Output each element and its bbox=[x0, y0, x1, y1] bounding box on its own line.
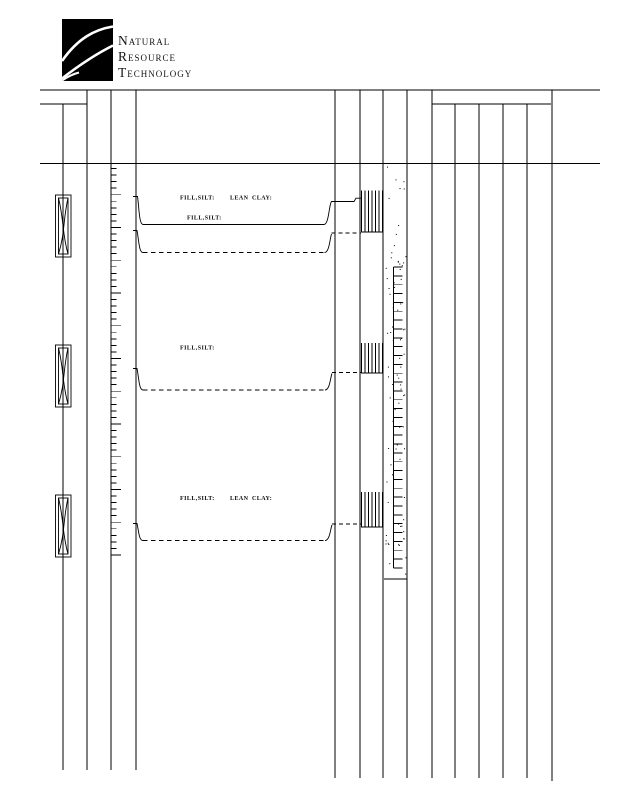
stipple-dot bbox=[388, 544, 389, 545]
stipple-dot bbox=[403, 262, 404, 263]
stipple-dot bbox=[398, 225, 399, 226]
stipple-dot bbox=[388, 367, 389, 368]
stipple-dot bbox=[399, 264, 400, 265]
layer2-right-end bbox=[325, 374, 332, 391]
boring-log-drawing: Natural Resource Technology bbox=[0, 0, 619, 800]
stipple-dot bbox=[394, 287, 395, 288]
logo-text-line1: Natural bbox=[118, 33, 170, 48]
soil-label-lean: LEAN bbox=[230, 496, 249, 502]
stipple-dot bbox=[388, 502, 389, 503]
stipple-dot bbox=[391, 252, 392, 253]
layer3-left-end bbox=[133, 524, 143, 541]
stipple-dot bbox=[387, 482, 388, 483]
stipple-dot bbox=[403, 181, 404, 182]
stipple-dot bbox=[403, 519, 404, 520]
stipple-dot bbox=[405, 574, 406, 575]
screen-hatch-intervals bbox=[361, 191, 383, 528]
stipple-dot bbox=[389, 288, 390, 289]
layer2-left-end bbox=[133, 369, 143, 391]
stipple-dot bbox=[400, 303, 401, 304]
stipple-dot bbox=[386, 268, 387, 269]
stipple-dot bbox=[398, 403, 399, 404]
stipple-dot bbox=[391, 464, 392, 465]
stipple-dot bbox=[392, 474, 393, 475]
stipple-dot bbox=[400, 339, 401, 340]
stipple-dot bbox=[401, 526, 402, 527]
soil-label-lean: LEAN bbox=[230, 196, 249, 202]
stipple-dot bbox=[390, 332, 391, 333]
stipple-dot bbox=[400, 269, 401, 270]
stipple-dot bbox=[397, 375, 398, 376]
stipple-dot bbox=[392, 327, 393, 328]
stipple-dot bbox=[388, 543, 389, 544]
stipple-dot bbox=[394, 245, 395, 246]
stipple-dot bbox=[404, 329, 405, 330]
stipple-dot bbox=[388, 448, 389, 449]
stipple-dot bbox=[400, 384, 401, 385]
stipple-dot bbox=[398, 378, 399, 379]
stipple-dot bbox=[397, 310, 398, 311]
soil-label-fill-silt: FILL,SILT: bbox=[180, 496, 215, 502]
layer1-bottom-left-end bbox=[133, 231, 143, 253]
stipple-dot bbox=[403, 426, 404, 427]
stipple-dot bbox=[402, 265, 403, 266]
stipple-dot bbox=[390, 397, 391, 398]
stipple-dot bbox=[404, 497, 405, 498]
stipple-dot bbox=[404, 448, 405, 449]
logo-text-line2: Resource bbox=[118, 49, 176, 64]
layer3-right-end bbox=[325, 525, 332, 541]
drawing-sheet: Natural Resource Technology bbox=[0, 0, 619, 800]
stipple-dot bbox=[386, 540, 387, 541]
stipple-dot bbox=[388, 376, 389, 377]
stipple-dot bbox=[405, 557, 406, 558]
stipple-dot bbox=[400, 367, 401, 368]
company-logo: Natural Resource Technology bbox=[62, 19, 192, 81]
stipple-dot bbox=[401, 279, 402, 280]
stipple-dot bbox=[389, 563, 390, 564]
stipple-dot bbox=[386, 535, 387, 536]
stipple-dot bbox=[396, 449, 397, 450]
stipple-dot bbox=[399, 358, 400, 359]
soil-label-clay: CLAY: bbox=[252, 196, 272, 202]
soil-label-fill-silt: FILL,SILT: bbox=[187, 216, 222, 222]
stipple-dot bbox=[400, 526, 401, 527]
stipple-dot bbox=[391, 257, 392, 258]
log-column-grid bbox=[40, 90, 600, 781]
stipple-dot bbox=[404, 189, 405, 190]
soil-description-labels: FILL,SILT: LEAN CLAY: FILL,SILT: FILL,SI… bbox=[180, 196, 272, 503]
stipple-dot bbox=[403, 538, 404, 539]
stipple-dot bbox=[403, 395, 404, 396]
depth-ruler bbox=[111, 169, 121, 555]
stipple-dot bbox=[400, 188, 401, 189]
stipple-dot bbox=[389, 198, 390, 199]
stipple-dot bbox=[398, 261, 399, 262]
stipple-dot bbox=[387, 333, 388, 334]
stipple-dot bbox=[403, 329, 404, 330]
stipple-dot bbox=[401, 389, 402, 390]
logo-text-line3: Technology bbox=[118, 65, 192, 80]
layer1-bottom-right-end bbox=[325, 234, 332, 253]
stipple-dot bbox=[396, 179, 397, 180]
stipple-dot bbox=[395, 409, 396, 410]
stipple-dot bbox=[404, 395, 405, 396]
stipple-dot bbox=[397, 445, 398, 446]
stipple-dot bbox=[403, 531, 404, 532]
soil-label-fill-silt: FILL,SILT: bbox=[180, 346, 215, 352]
stipple-dot bbox=[390, 294, 391, 295]
stipple-dot bbox=[386, 544, 387, 545]
stipple-dot bbox=[400, 459, 401, 460]
well-screen-comb bbox=[394, 267, 403, 568]
stipple-dot bbox=[387, 167, 388, 168]
soil-label-fill-silt: FILL,SILT: bbox=[180, 196, 215, 202]
stipple-dot bbox=[387, 278, 388, 279]
stipple-dot bbox=[404, 354, 405, 355]
stipple-dot bbox=[399, 545, 400, 546]
stipple-dot bbox=[399, 427, 400, 428]
soil-label-clay: CLAY: bbox=[252, 496, 272, 502]
soil-layer-profiles bbox=[133, 197, 361, 541]
stipple-dot bbox=[405, 256, 406, 257]
stipple-dot bbox=[398, 544, 399, 545]
stipple-dot bbox=[396, 234, 397, 235]
